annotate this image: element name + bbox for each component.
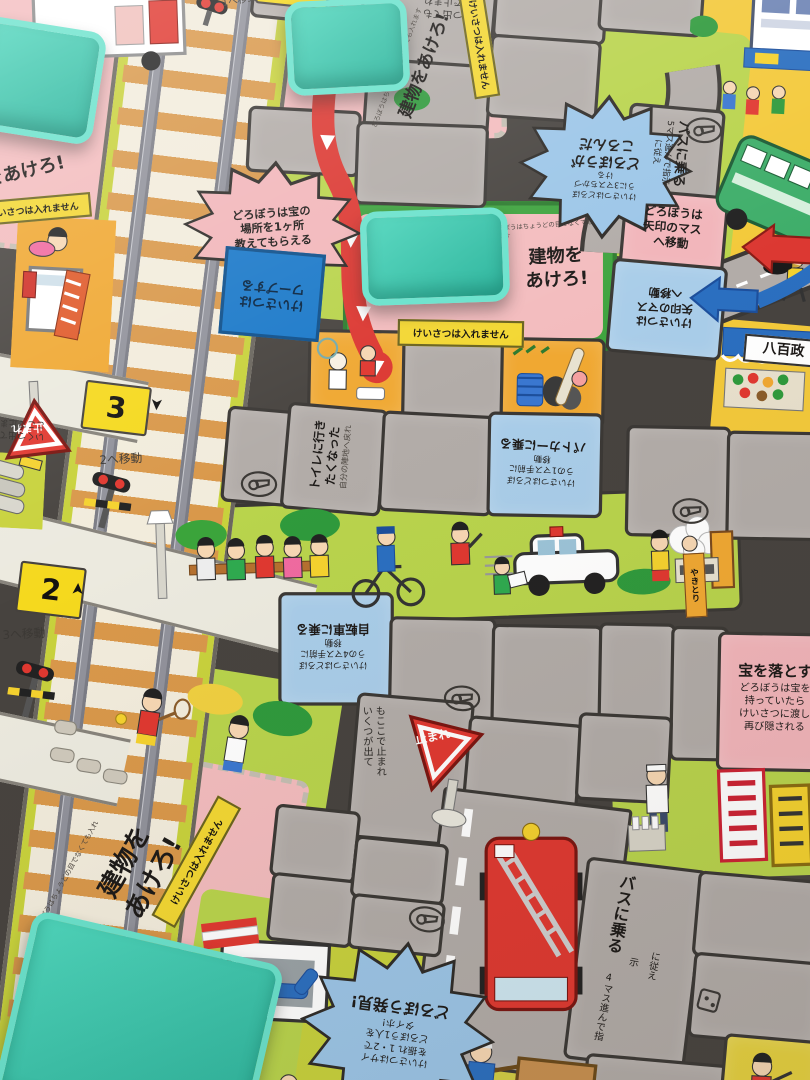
- sale-sign-white: [718, 770, 766, 861]
- thief-found-body: けいさつはサイ を振れ 1・2で どろぼう1人を タイホ!: [360, 1012, 433, 1069]
- police-note-label: けいさつは入れません: [413, 326, 509, 342]
- board-space: [485, 34, 602, 125]
- treasure-drop-text: 宝を落とす どろぼうは宝を 持っていたら けいさつに渡し 再び隠される: [718, 634, 810, 764]
- bicycle-text: けいさつはどろぼ うの4マス手前に 移動 自転車に乗る: [281, 594, 386, 697]
- street-lamp: [147, 510, 176, 599]
- bicycle-title: 自転車に乗る: [296, 621, 370, 637]
- park-strip-illustration: [138, 486, 737, 624]
- building-piece[interactable]: [0, 14, 108, 146]
- waving-kid: [450, 521, 483, 565]
- bicycle-body: けいさつはどろぼ うの4マス手前に 移動: [299, 637, 367, 670]
- marker-3-arrow-icon: ➤: [146, 397, 167, 412]
- open-building-label-center: 建物を あけろ!: [507, 243, 606, 295]
- stop-note-vert-label: いくつが出て もここで止まれ: [359, 705, 386, 777]
- building-piece[interactable]: [359, 207, 510, 306]
- patrol-car-text: けいさつはどろぼ うの1マス手前に 移動 パトカーに乗る: [487, 412, 597, 512]
- marker-number: 2: [39, 572, 63, 607]
- yakitori-flag: やきとり: [683, 553, 708, 618]
- treasure-drop-title: 宝を落とす: [738, 662, 810, 682]
- yakitori-flag-label: やきとり: [688, 568, 702, 603]
- milkman: [626, 764, 670, 851]
- stop-note-3: いくつ出ても ここで止まれ: [0, 415, 63, 443]
- patrol-car-illustration: [514, 525, 619, 597]
- game-board: 4 ➤ 1へ移動 3 ➤ 2へ移動 2 ➤ 3へ移動 止まれ いくつ出ても ここ…: [0, 0, 810, 1080]
- tennis-kid-2: [222, 714, 250, 773]
- thief-arrow-label: どろぼうは 矢印のマス へ移動: [623, 190, 721, 266]
- walking-woman: [651, 529, 670, 581]
- board-space: [725, 431, 810, 542]
- cleaning-person: [276, 1074, 316, 1080]
- waiting-people: [722, 81, 786, 116]
- marker-2-move-label: 3へ移動: [2, 626, 46, 643]
- toilet-text: トイレに行き たくなった 自分の陣地へ戻れ: [277, 404, 385, 507]
- marker-number: 3: [104, 390, 128, 425]
- building-piece[interactable]: [284, 0, 411, 96]
- patrol-body: けいさつはどろぼ うの1マス手前に 移動: [507, 451, 577, 487]
- stone-path: [48, 719, 135, 784]
- ticket-machine: [744, 0, 810, 72]
- dice-icon: [694, 986, 728, 1015]
- stop-note-bottom: いくつが出て もここで止まれ: [359, 705, 387, 825]
- treasure-drop-body: どろぼうは宝を 持っていたら けいさつに渡し 再び隠される: [739, 682, 810, 735]
- trash-person-illustration: [311, 333, 398, 409]
- police-warp-label: けいさつは ワープする: [239, 275, 306, 313]
- whistle-icon: [442, 683, 482, 713]
- whistle-icon: [670, 496, 710, 526]
- food-stand-illustration: [10, 215, 116, 372]
- greengrocer-sign-label: 八百政: [762, 340, 805, 361]
- route-marker-3: 3: [80, 380, 152, 437]
- bus-4-body: 4マス進んで指示 に従え: [591, 950, 660, 1041]
- whistle-icon: [239, 469, 279, 499]
- police-warp-space: けいさつは ワープする: [218, 246, 326, 342]
- board-photo: 4 ➤ 1へ移動 3 ➤ 2へ移動 2 ➤ 3へ移動 止まれ いくつ出ても ここ…: [0, 0, 810, 1080]
- pointing-kids-illustration: [722, 1041, 810, 1080]
- bus-5-text: バスに乗る 5マス進んで指示 に従え: [620, 104, 722, 202]
- police-arrow-label: けいさつは 矢印のマス へ移動: [611, 264, 718, 348]
- garbage-illustration: [504, 341, 597, 420]
- tennis-kid-red: [112, 683, 192, 750]
- police-note-label: けいさつは入れません: [0, 199, 79, 220]
- marker-2-arrow-icon: ➤: [67, 582, 88, 597]
- police-note-strip-center: けいさつは入れません: [397, 319, 524, 348]
- red-arrow-icon: [742, 223, 810, 274]
- bus-4-title: バスに乗る: [604, 873, 638, 955]
- sale-sign-yellow: [770, 785, 810, 865]
- stop-sign-icon: [387, 707, 490, 837]
- marker-3-move-label: 2へ移動: [99, 451, 143, 468]
